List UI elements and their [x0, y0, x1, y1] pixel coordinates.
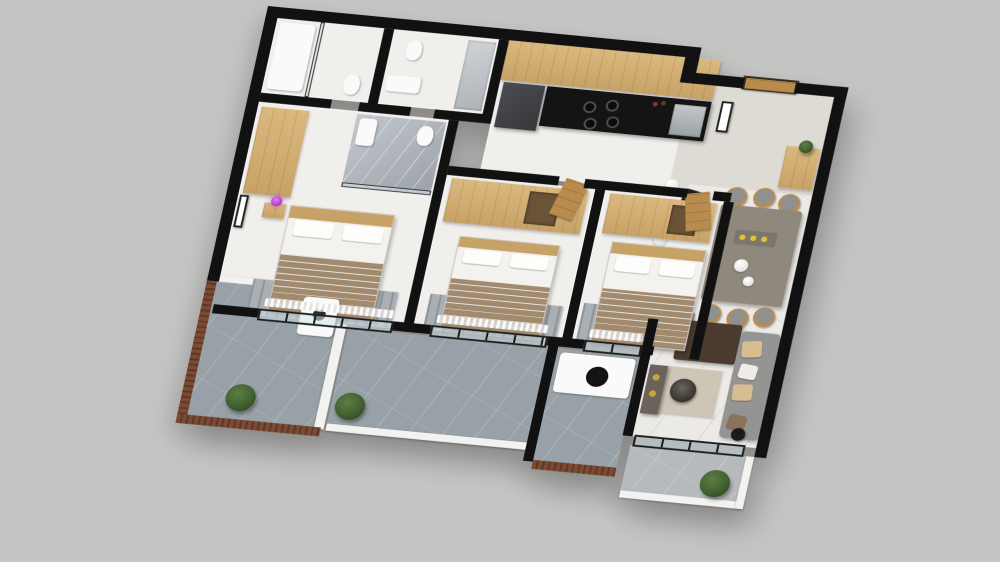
- wall-hall-south: [712, 191, 732, 202]
- apartment-floor-plan: [167, 6, 852, 517]
- sofa-cushion-tan: [741, 341, 762, 358]
- sofa-cushion-tan: [731, 384, 753, 401]
- bed-pillow: [292, 220, 335, 239]
- bed-pillow: [462, 249, 503, 266]
- wall-pier: [641, 345, 655, 355]
- bed-pillow: [341, 225, 384, 244]
- oven: [668, 104, 706, 138]
- bathroom-sink: [385, 75, 422, 94]
- interior-door: [685, 192, 710, 232]
- bed-pillow: [509, 254, 550, 271]
- sofa-cushion-white: [737, 363, 759, 381]
- render-canvas: [0, 0, 1000, 562]
- bed-pillow: [658, 260, 697, 278]
- bed-pillow: [613, 256, 652, 274]
